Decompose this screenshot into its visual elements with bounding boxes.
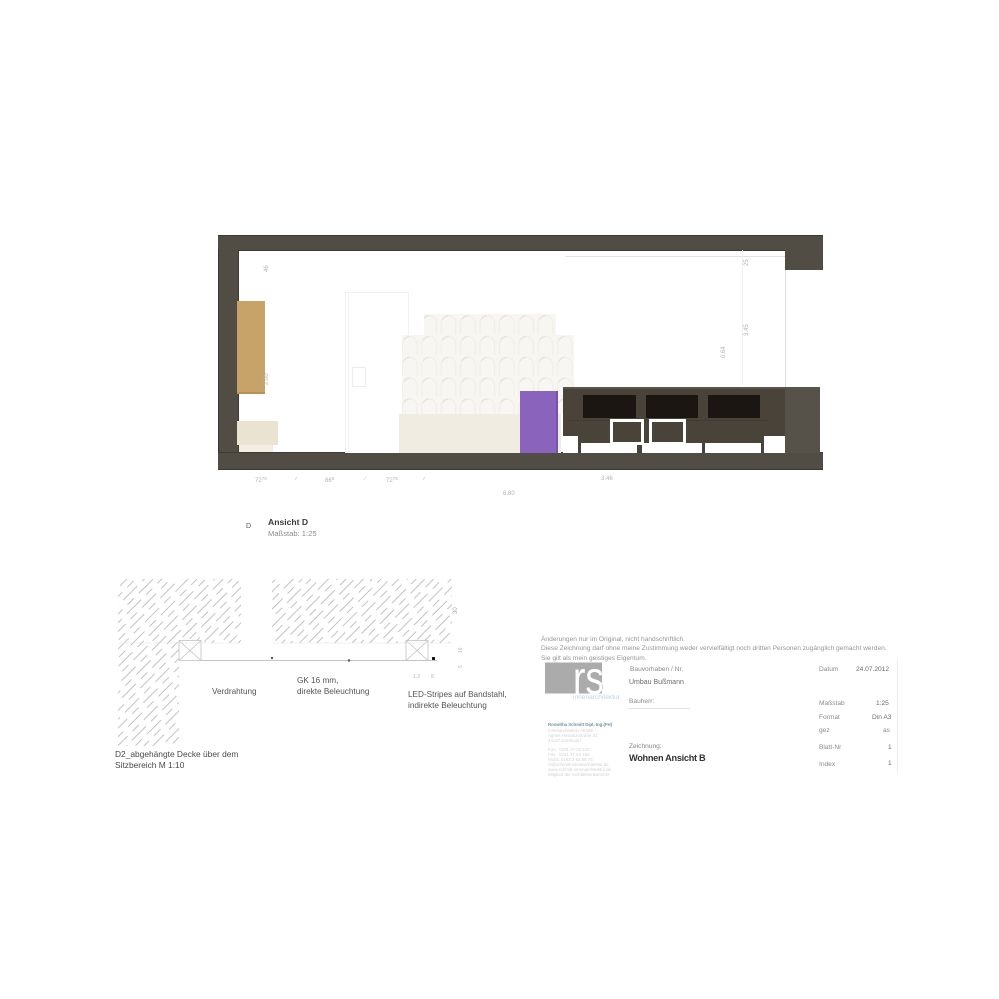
svg-text:5: 5 (458, 665, 464, 668)
svg-text:1.3: 1.3 (413, 674, 420, 680)
svg-text:8: 8 (431, 674, 434, 680)
svg-text:16: 16 (458, 647, 464, 653)
svg-text:30: 30 (453, 607, 459, 614)
